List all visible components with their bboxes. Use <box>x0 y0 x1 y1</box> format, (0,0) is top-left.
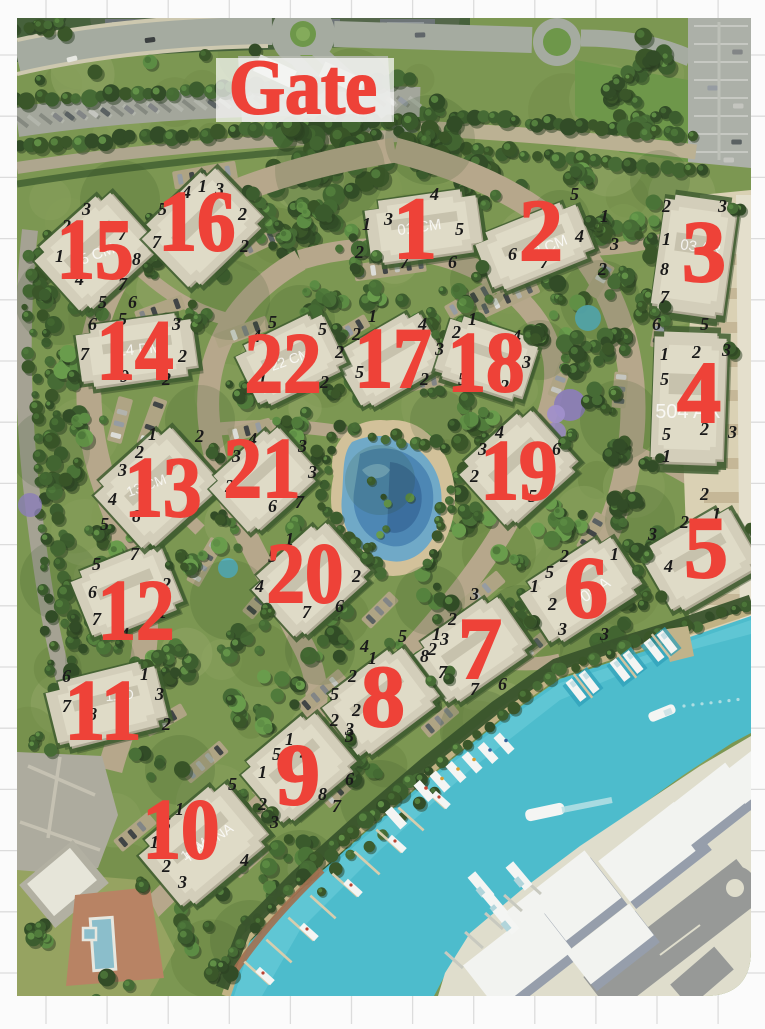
svg-text:2: 2 <box>354 242 364 262</box>
svg-text:1: 1 <box>660 344 669 364</box>
svg-text:7: 7 <box>130 544 140 564</box>
svg-text:4: 4 <box>107 489 117 509</box>
svg-text:5: 5 <box>228 774 237 794</box>
svg-text:5: 5 <box>100 514 109 534</box>
svg-text:5: 5 <box>684 500 728 597</box>
svg-text:1: 1 <box>362 214 371 234</box>
svg-text:20: 20 <box>267 525 344 621</box>
svg-text:4: 4 <box>239 850 249 870</box>
svg-text:3: 3 <box>439 629 449 649</box>
svg-text:5: 5 <box>398 626 407 646</box>
svg-text:2: 2 <box>351 566 361 586</box>
svg-text:2: 2 <box>469 466 479 486</box>
svg-text:2: 2 <box>334 342 344 362</box>
svg-text:1: 1 <box>662 446 671 466</box>
svg-text:6: 6 <box>345 769 354 789</box>
svg-text:2: 2 <box>237 204 247 224</box>
svg-text:2: 2 <box>519 183 563 280</box>
svg-text:2: 2 <box>161 714 171 734</box>
svg-text:7: 7 <box>438 662 448 682</box>
svg-text:2: 2 <box>329 710 339 730</box>
svg-text:3: 3 <box>307 462 317 482</box>
svg-text:10: 10 <box>143 781 220 877</box>
svg-text:13: 13 <box>125 439 202 535</box>
svg-text:1: 1 <box>530 576 539 596</box>
svg-text:11: 11 <box>65 662 142 758</box>
svg-text:1: 1 <box>610 544 619 564</box>
svg-text:22: 22 <box>245 315 322 411</box>
svg-text:2: 2 <box>347 666 357 686</box>
svg-text:7: 7 <box>458 601 502 698</box>
svg-text:4: 4 <box>574 226 584 246</box>
svg-text:2: 2 <box>547 594 557 614</box>
svg-text:3: 3 <box>434 339 444 359</box>
svg-text:2: 2 <box>447 609 457 629</box>
svg-text:7: 7 <box>660 287 670 307</box>
svg-text:Gate: Gate <box>229 43 377 130</box>
svg-text:2: 2 <box>661 196 671 216</box>
svg-text:5: 5 <box>570 184 579 204</box>
svg-text:14: 14 <box>97 302 174 398</box>
svg-text:3: 3 <box>344 726 354 746</box>
svg-text:3: 3 <box>727 422 737 442</box>
svg-text:2: 2 <box>257 794 267 814</box>
svg-text:16: 16 <box>159 173 236 269</box>
svg-text:8: 8 <box>361 649 405 746</box>
svg-text:2: 2 <box>239 236 249 256</box>
svg-text:4: 4 <box>677 345 721 442</box>
svg-text:5: 5 <box>660 369 669 389</box>
svg-text:17: 17 <box>355 310 432 406</box>
svg-text:1: 1 <box>393 181 437 278</box>
svg-text:6: 6 <box>652 314 661 334</box>
svg-text:3: 3 <box>647 524 657 544</box>
svg-text:3: 3 <box>154 684 164 704</box>
svg-text:15: 15 <box>57 201 134 297</box>
svg-text:2: 2 <box>597 259 607 279</box>
svg-text:2: 2 <box>427 639 437 659</box>
svg-text:6: 6 <box>88 582 97 602</box>
svg-text:4: 4 <box>254 576 264 596</box>
svg-text:6: 6 <box>564 540 608 637</box>
svg-text:6: 6 <box>508 244 517 264</box>
svg-text:1: 1 <box>600 206 609 226</box>
svg-text:5: 5 <box>330 684 339 704</box>
svg-text:4: 4 <box>663 556 673 576</box>
svg-text:2: 2 <box>351 700 361 720</box>
svg-text:7: 7 <box>332 796 342 816</box>
svg-text:3: 3 <box>721 340 731 360</box>
svg-text:2: 2 <box>177 346 187 366</box>
svg-text:3: 3 <box>609 234 619 254</box>
svg-text:5: 5 <box>662 424 671 444</box>
svg-text:6: 6 <box>448 252 457 272</box>
svg-text:5: 5 <box>545 562 554 582</box>
svg-text:21: 21 <box>224 420 301 516</box>
svg-text:5: 5 <box>700 314 709 334</box>
svg-text:1: 1 <box>662 229 671 249</box>
svg-text:3: 3 <box>682 204 726 301</box>
svg-text:1: 1 <box>258 762 267 782</box>
svg-text:5: 5 <box>455 219 464 239</box>
svg-text:3: 3 <box>383 209 393 229</box>
svg-text:7: 7 <box>80 344 90 364</box>
svg-text:8: 8 <box>660 259 669 279</box>
svg-text:12: 12 <box>98 562 175 658</box>
svg-text:18: 18 <box>448 314 525 410</box>
svg-text:19: 19 <box>481 422 558 518</box>
svg-text:9: 9 <box>276 727 320 824</box>
